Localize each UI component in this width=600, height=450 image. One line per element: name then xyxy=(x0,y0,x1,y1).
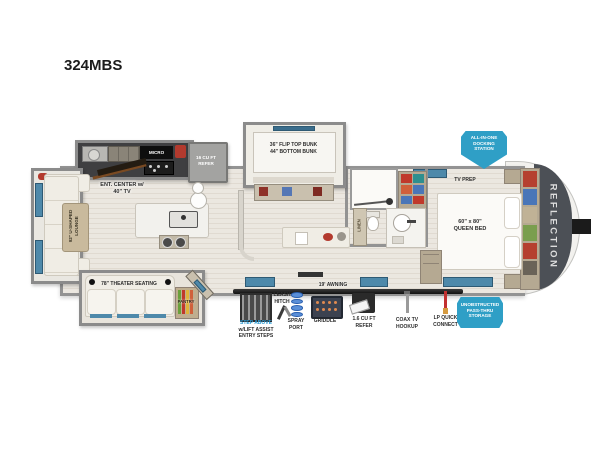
flowers-decor xyxy=(175,145,186,158)
awning-label: 19' AWNING xyxy=(307,282,359,289)
clothes-item xyxy=(523,189,537,205)
hall-wall xyxy=(238,190,244,250)
island-vase-decor xyxy=(192,182,204,194)
griddle-icon xyxy=(311,296,343,319)
shower xyxy=(350,168,398,210)
pantry-label: PANTRY xyxy=(173,299,199,304)
appliance-item xyxy=(282,187,292,196)
kitchen-sink-counter xyxy=(82,146,108,162)
island-faucet-icon xyxy=(181,215,186,220)
model-title: 324MBS xyxy=(64,57,122,74)
refrigerator-label: 16 CU FTREFER xyxy=(190,155,222,167)
nightstand xyxy=(504,169,521,184)
theater-mat xyxy=(90,314,112,318)
lp-connect-icon xyxy=(444,291,447,308)
lp-connect-tip xyxy=(443,308,448,314)
microwave-label: MICRO xyxy=(149,150,164,155)
refrigerator: 16 CU FTREFER xyxy=(188,142,228,183)
clothes-item xyxy=(523,207,537,223)
steps-label: STEP ABOVE w/LIFT ASSIST ENTRY STEPS xyxy=(228,320,284,340)
window xyxy=(360,277,388,287)
lounge-window xyxy=(35,240,43,274)
linen-label: LINEN xyxy=(357,208,362,244)
window xyxy=(443,277,493,287)
floor-mat xyxy=(298,272,323,277)
theater-label: 78" THEATER SEATING xyxy=(85,281,173,288)
island-vase-decor xyxy=(190,192,207,209)
bath-wardrobe xyxy=(398,171,427,209)
bedroom-dresser xyxy=(420,250,442,284)
bunk-vent xyxy=(273,126,315,131)
dinette-table xyxy=(282,227,350,248)
mini-refer-label: 1.6 CU FTREFER xyxy=(345,316,383,329)
brand-label: REFLECTION xyxy=(548,172,559,282)
bath-vanity xyxy=(386,208,426,248)
appliance-item xyxy=(313,187,322,196)
toilet-bowl xyxy=(367,216,379,231)
front-wardrobe xyxy=(520,168,540,290)
decor-item xyxy=(337,232,346,241)
griddle-label: GRIDDLE xyxy=(308,318,342,325)
bunk-dresser xyxy=(254,184,334,201)
bunk-slide: 36" FLIP TOP BUNK44" BOTTOM BUNK xyxy=(243,122,346,188)
floorplan-canvas: 324MBS REFLECTION 60" x 80"QUEEN BED TV … xyxy=(0,0,600,450)
bed-pillow xyxy=(504,197,520,229)
docking-station-badge: ALL-IN-ONEDOCKINGSTATION xyxy=(461,131,507,169)
spray-port-icon xyxy=(291,292,303,317)
nightstand xyxy=(504,274,521,289)
decor-item xyxy=(323,233,333,241)
shower-head-icon xyxy=(386,198,393,205)
lounge-label: 92" U-SHAPEDLOUNGE xyxy=(68,199,80,253)
island-stools xyxy=(159,235,189,249)
spray-port-label: SPRAYPORT xyxy=(281,318,311,331)
bunk-label: 36" FLIP TOP BUNK44" BOTTOM BUNK xyxy=(253,142,334,155)
mini-refer-icon xyxy=(352,293,375,313)
clothes-item xyxy=(523,171,537,187)
storage-badge: UNOBSTRUCTEDPASS-THRUSTORAGE xyxy=(457,297,503,328)
coax-hookup-icon xyxy=(406,293,409,313)
window xyxy=(245,277,275,287)
tv-prep-label: TV PREP xyxy=(445,177,485,184)
vanity-faucet-icon xyxy=(407,220,416,223)
vanity-sink xyxy=(393,214,411,232)
bed-label: 60" x 80"QUEEN BED xyxy=(440,219,500,233)
theater-mat xyxy=(117,314,139,318)
coax-label: COAX TVHOOKUP xyxy=(389,317,425,330)
clothes-item xyxy=(523,225,537,241)
appliance-item xyxy=(259,187,268,196)
bed-pillow xyxy=(504,236,520,268)
theater-mat xyxy=(144,314,166,318)
clothes-item xyxy=(523,243,537,259)
hitch-pin-icon xyxy=(571,219,591,234)
stove xyxy=(144,161,174,175)
lounge-window xyxy=(35,183,43,217)
ent-center-label: ENT. CENTER w/40" TV xyxy=(92,182,152,196)
clothes-item xyxy=(523,261,537,275)
coax-hookup-cap xyxy=(404,291,410,294)
